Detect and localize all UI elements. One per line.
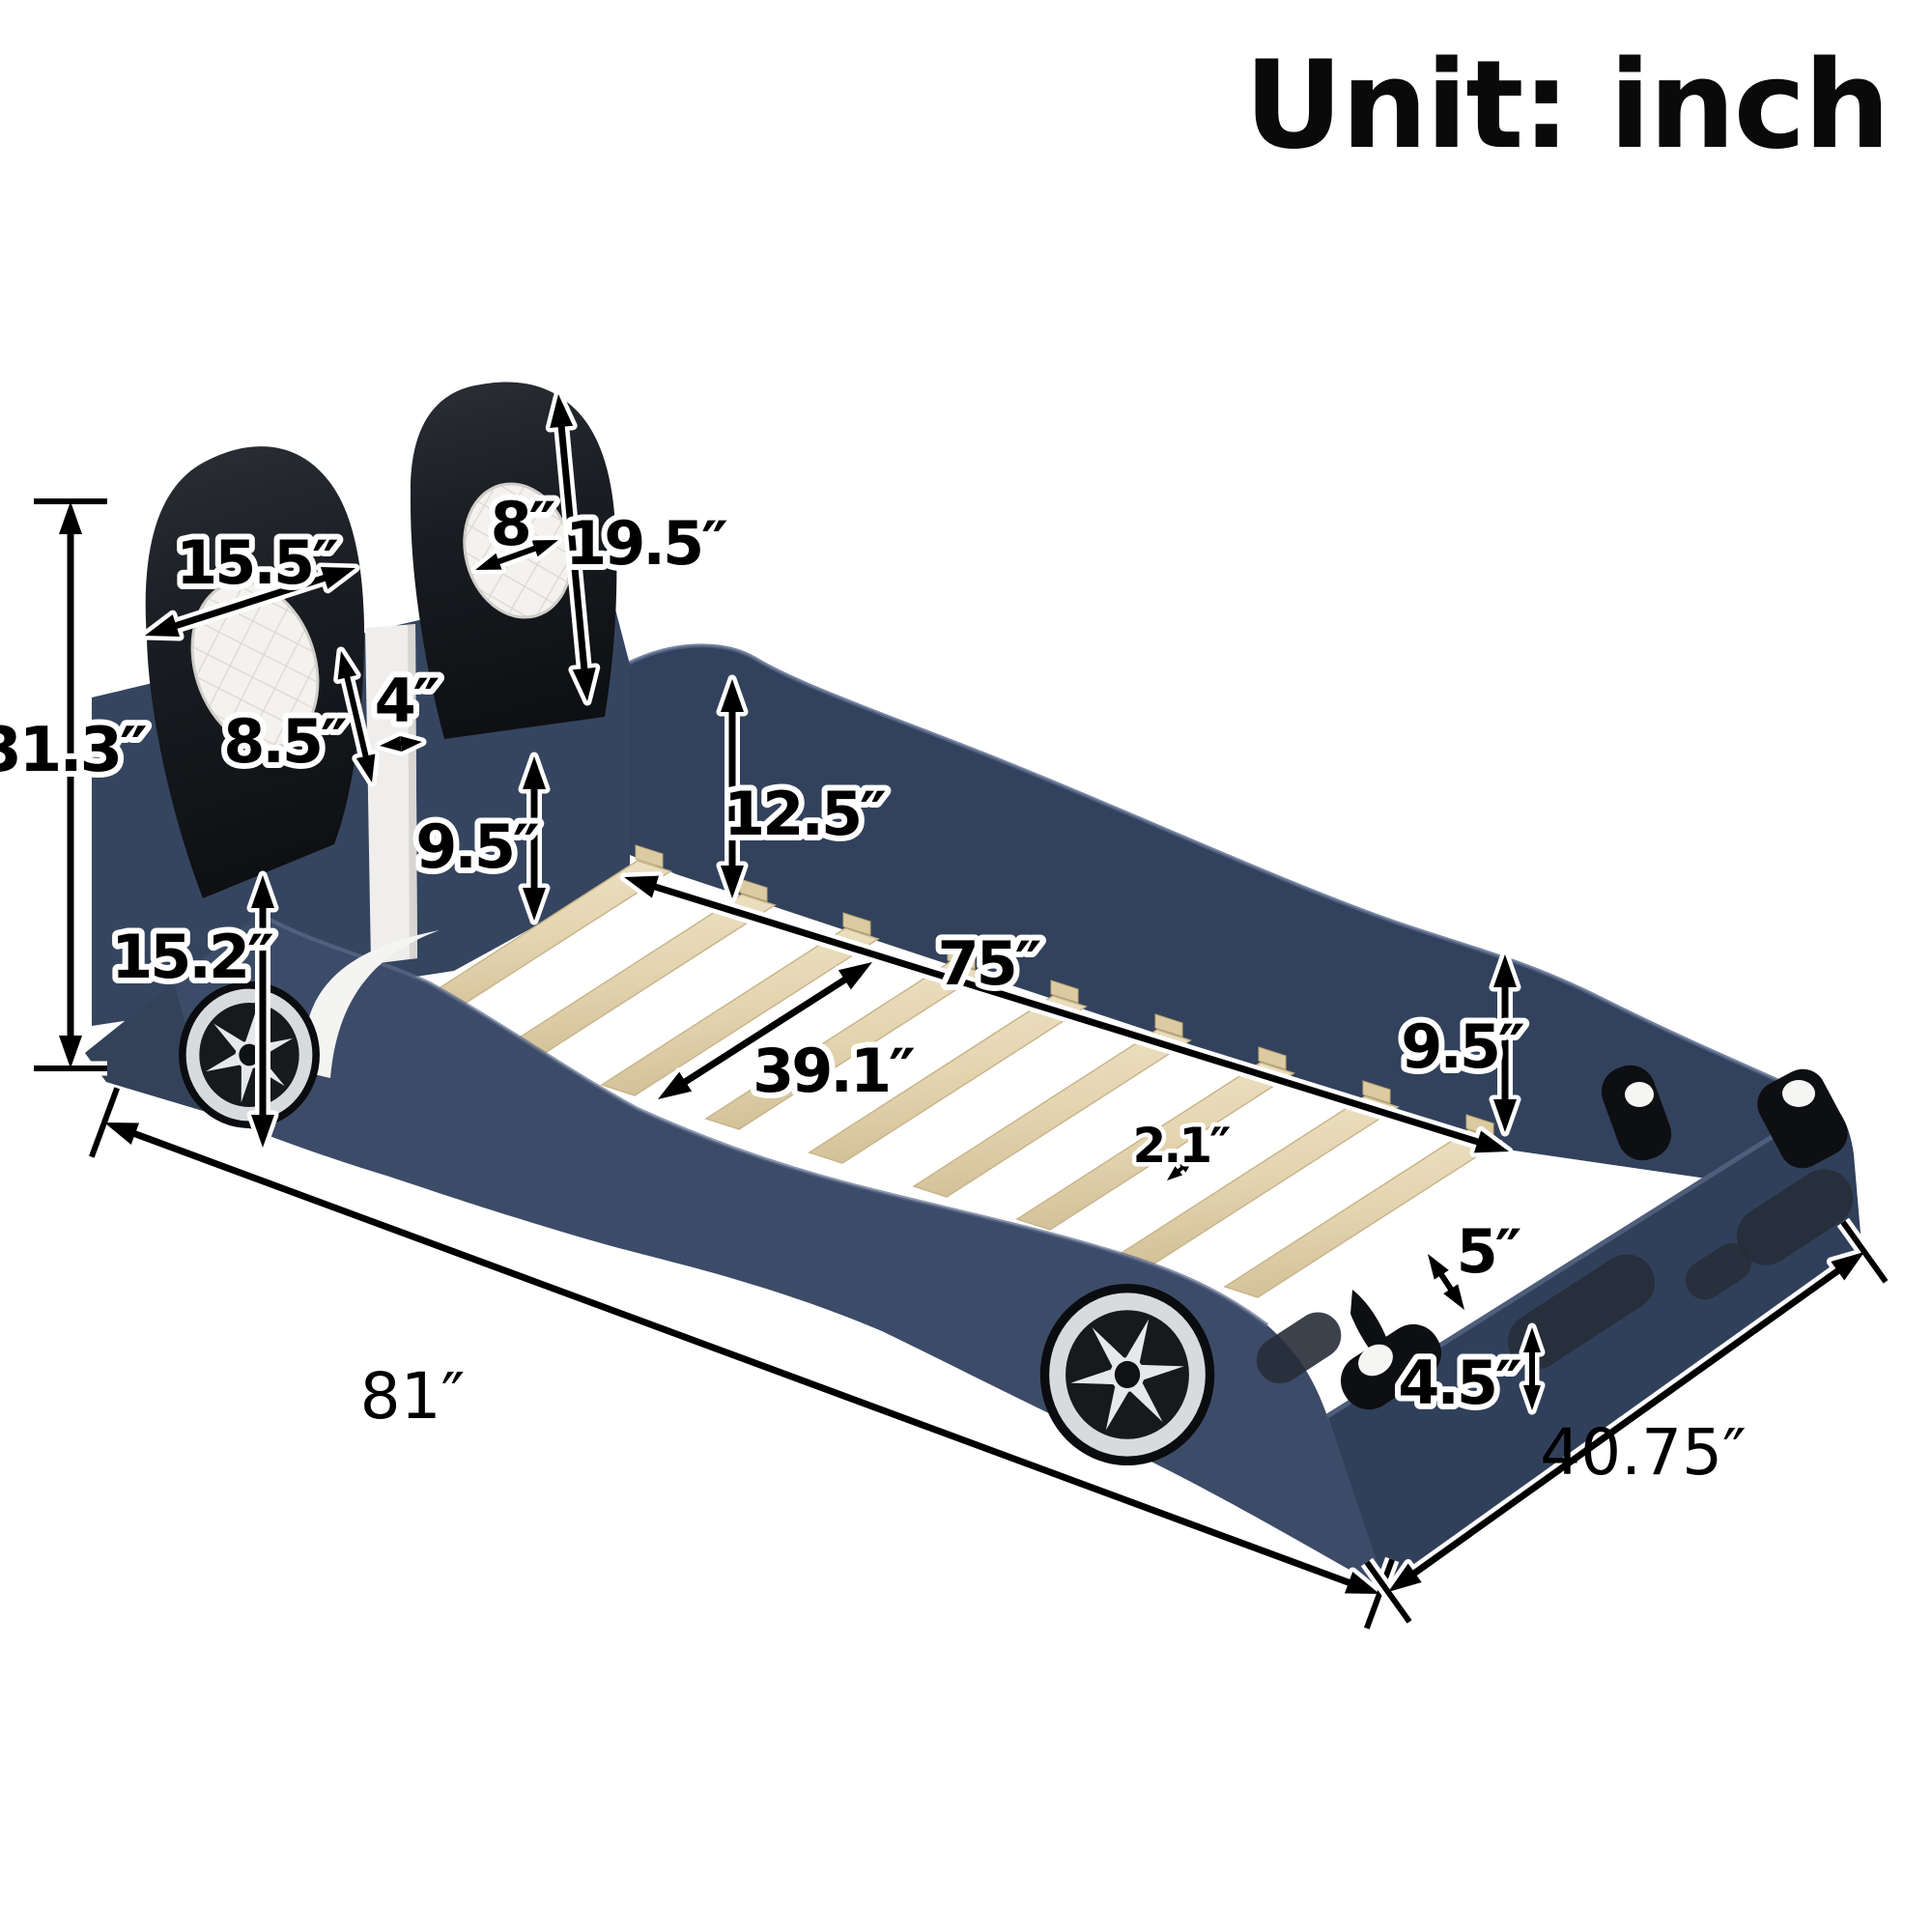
dim-foot-rail-top-label: 5″ bbox=[1457, 1216, 1521, 1287]
dim-foot-clearance-label: 4.5″ bbox=[1398, 1348, 1521, 1418]
dim-headrest-height-label: 19.5″ bbox=[565, 508, 727, 579]
dimension-arrow-foot-clearance bbox=[1523, 1327, 1541, 1410]
car-bed-dimension-illustration: 31.3″ 15.5″ 8″ 19.5″ 8.5″ 4″ 9.5″ 12.5″ … bbox=[0, 0, 1932, 1932]
dim-headrest-width-label: 15.5″ bbox=[176, 527, 338, 598]
dim-front-height-label: 15.2″ bbox=[111, 922, 273, 992]
diagram-canvas: 31.3″ 15.5″ 8″ 19.5″ 8.5″ 4″ 9.5″ 12.5″ … bbox=[0, 0, 1932, 1932]
dim-headrest-gap-width-label: 4″ bbox=[375, 666, 440, 736]
dim-interior-width-label: 39.1″ bbox=[753, 1036, 915, 1106]
dim-headrest-pad-width-label: 8″ bbox=[491, 489, 555, 559]
rear-wheel bbox=[1040, 1284, 1214, 1465]
dim-slat-thickness-label: 2.1″ bbox=[1133, 1118, 1232, 1174]
dim-overall-length-label: 81″ bbox=[360, 1359, 466, 1434]
dim-side-panel-rear-height-label: 12.5″ bbox=[724, 779, 886, 849]
dim-headrest-gap-height-label: 8.5″ bbox=[223, 706, 347, 777]
round-light-icon bbox=[1782, 1080, 1815, 1107]
front-wheel bbox=[179, 981, 320, 1128]
dim-overall-width-label: 40.75″ bbox=[1540, 1415, 1747, 1490]
dim-foot-side-height-label: 9.5″ bbox=[1401, 1011, 1524, 1082]
unit-label: Unit: inch bbox=[1244, 34, 1889, 176]
dimension-arrow-headrest-gap-width bbox=[380, 736, 422, 752]
dim-overall-height-label: 31.3″ bbox=[0, 715, 147, 786]
round-light-icon bbox=[1625, 1082, 1654, 1107]
dim-interior-length-label: 75″ bbox=[938, 928, 1041, 999]
dim-headboard-rail-height-label: 9.5″ bbox=[415, 811, 539, 882]
